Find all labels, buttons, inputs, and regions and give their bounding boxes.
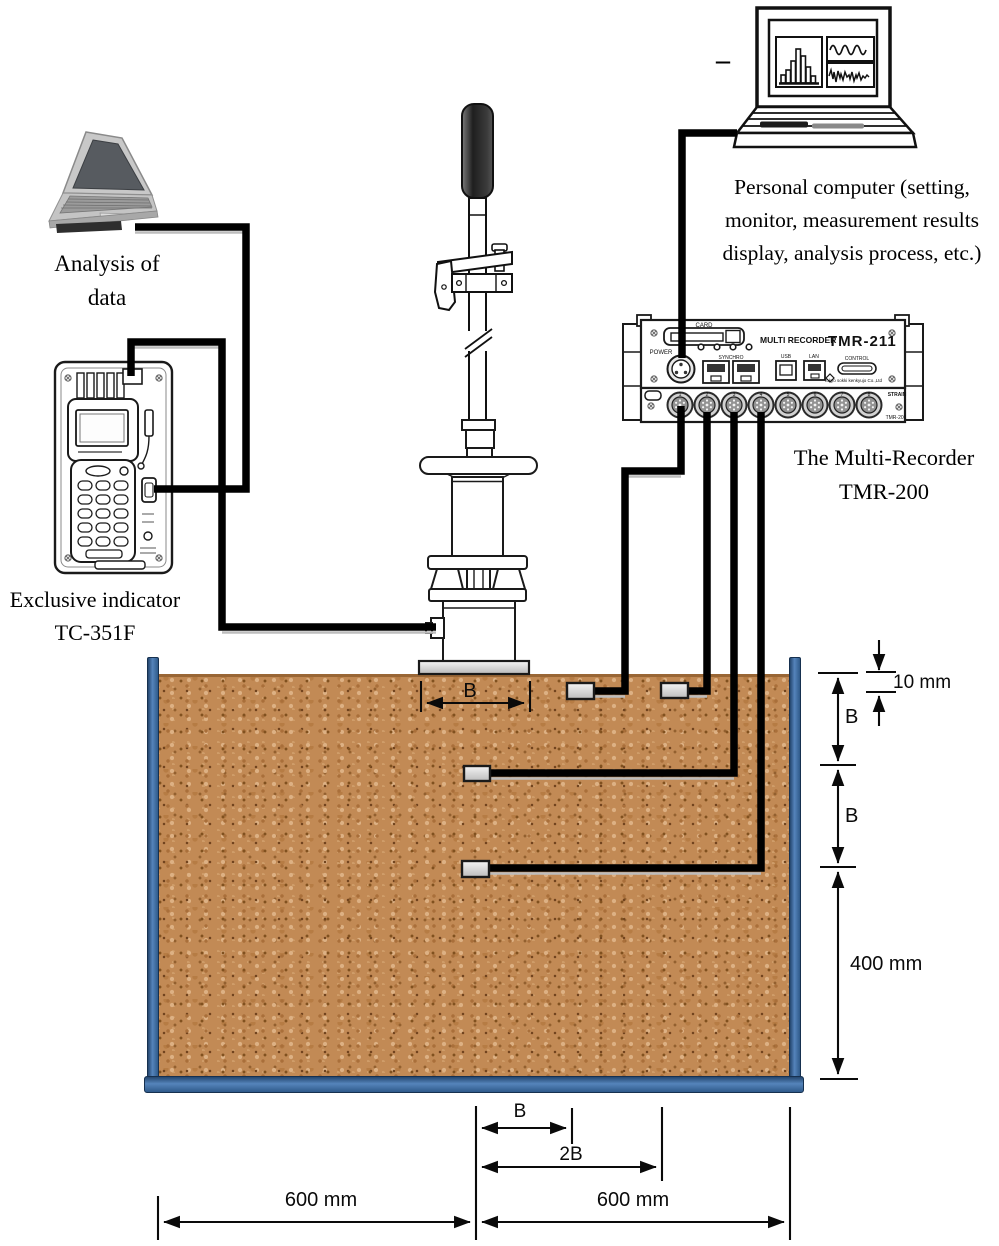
analysis-laptop-image: [49, 132, 158, 233]
svg-text:8: 8: [868, 392, 871, 398]
serial-connector: [142, 478, 156, 502]
box-depth-label: 400 mm: [850, 953, 922, 976]
pc-caption-line3: display, analysis process, etc.): [705, 237, 999, 270]
maker-label: Tokyo sokki kenkyujo Co.,Ltd: [824, 378, 883, 383]
drive-cylinder: [452, 477, 503, 556]
footing-plate: [419, 661, 529, 674]
indicator-caption-line2: TC-351F: [0, 616, 190, 649]
indicator-caption-line1: Exclusive indicator: [0, 583, 190, 616]
offset-2b-label: 2B: [551, 1144, 591, 1166]
stray-dash: –: [716, 45, 730, 77]
hand-rammer: [419, 104, 537, 674]
recorder-caption-line2: TMR-200: [778, 475, 990, 508]
rammer-handle: [462, 104, 493, 198]
accelerometer-sensors: [462, 683, 688, 877]
analysis-caption-line2: data: [32, 281, 182, 314]
personal-computer-image: [734, 8, 916, 147]
lan-label: LAN: [809, 354, 819, 360]
svg-text:5: 5: [787, 392, 790, 398]
svg-text:3: 3: [733, 392, 736, 398]
recorder-submodel-label: TMR-201: [886, 415, 907, 421]
test-setup-diagram: CARD MULTI RECORDER TMR-211 POWER SYNCHR…: [0, 0, 999, 1246]
depth-b1-label: B: [845, 706, 858, 729]
channel2-cable: [687, 412, 707, 691]
power-connector: [668, 356, 695, 383]
svg-text:7: 7: [841, 392, 844, 398]
svg-text:4: 4: [760, 392, 763, 398]
card-label: CARD: [695, 323, 713, 329]
pc-caption-line2: monitor, measurement results: [705, 204, 999, 237]
handheld-unit: [68, 399, 138, 562]
embedment-label: 10 mm: [893, 672, 951, 694]
left-width-label: 600 mm: [246, 1189, 396, 1212]
control-label: CONTROL: [845, 356, 870, 362]
depth-b-sensor: [464, 766, 490, 781]
card-slot: [664, 328, 744, 345]
power-label: POWER: [650, 350, 673, 356]
signal-cables: [131, 133, 761, 868]
surface-sensor-2: [661, 683, 688, 698]
footing-width-label: B: [450, 680, 490, 703]
multi-recorder-device: CARD MULTI RECORDER TMR-211 POWER SYNCHR…: [623, 315, 923, 422]
analysis-caption-line1: Analysis of: [32, 247, 182, 280]
vent-slats: [77, 373, 124, 398]
recorder-model-label: TMR-211: [828, 333, 897, 350]
svg-text:2: 2: [706, 392, 709, 398]
lan-port: [804, 361, 825, 380]
dimension-lines: [158, 640, 896, 1240]
control-connector: [838, 363, 876, 374]
recorder-caption-line1: The Multi-Recorder: [778, 441, 990, 474]
depth-b2-label: B: [845, 805, 858, 828]
channel1-cable: [592, 406, 681, 691]
exclusive-indicator-device: [55, 362, 172, 573]
synchro-label: SYNCHRO: [718, 355, 743, 361]
offset-b-label: B: [500, 1101, 540, 1123]
load-cell: [426, 601, 515, 662]
strain-label: STRAIN: [888, 392, 907, 398]
usb-label: USB: [781, 354, 792, 360]
usb-port: [776, 361, 796, 380]
surface-sensor-1: [567, 683, 594, 699]
guide-collar: [420, 457, 537, 474]
waveform-icon: [827, 37, 874, 87]
pc-caption-line1: Personal computer (setting,: [705, 171, 999, 204]
recorder-brand-label: MULTI RECORDER: [760, 335, 836, 345]
svg-text:6: 6: [814, 392, 817, 398]
depth-2b-sensor: [462, 861, 489, 877]
histogram-chart-icon: [776, 37, 822, 87]
svg-text:1: 1: [679, 392, 682, 398]
right-width-label: 600 mm: [558, 1189, 708, 1212]
